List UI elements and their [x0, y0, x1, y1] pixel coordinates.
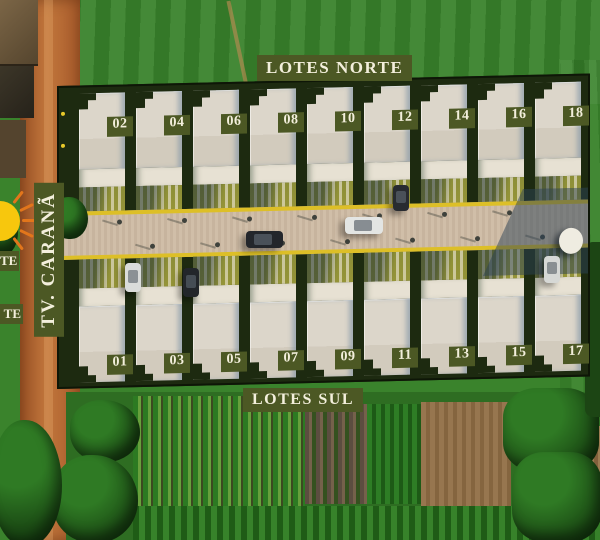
house-porch — [364, 281, 410, 300]
townhouse-lot: 13 — [421, 250, 467, 374]
car-icon-dark-street — [246, 231, 283, 248]
street-lamp-icon — [150, 244, 155, 249]
tree-canopy — [52, 455, 138, 540]
driveway — [193, 184, 239, 209]
street-lamp-icon — [345, 239, 350, 244]
townhouse-lot: 01 — [79, 258, 125, 382]
lot-number-badge: 05 — [221, 352, 247, 373]
label-lotes-sul: LOTES SUL — [243, 388, 363, 412]
house-roof: 01 — [79, 305, 125, 382]
house-porch — [535, 158, 581, 177]
sun-ray — [19, 229, 34, 238]
car-icon-dark-parked — [393, 185, 409, 211]
house-roof: 08 — [250, 88, 296, 165]
street-lamp-icon — [215, 242, 220, 247]
house-porch — [307, 282, 353, 301]
lot-number-badge: 01 — [107, 354, 133, 375]
house-roof: 11 — [364, 299, 410, 376]
townhouse-lot: 05 — [193, 256, 239, 380]
house-porch — [250, 164, 296, 183]
roof-notch — [421, 85, 430, 101]
roof-notch — [193, 364, 202, 380]
roof-notch — [250, 89, 259, 105]
car-icon-white-parked — [125, 263, 141, 292]
car-icon-dark-parked — [183, 268, 199, 297]
house-roof: 12 — [364, 86, 410, 163]
house-roof: 04 — [136, 91, 182, 168]
townhouse-lot: 03 — [136, 257, 182, 381]
driveway — [307, 181, 353, 206]
driveway — [79, 186, 125, 211]
lot-number-badge: 06 — [221, 114, 247, 135]
roof-notch — [364, 360, 373, 376]
street-lamp-icon — [247, 216, 252, 221]
townhouse-lot: 10 — [307, 87, 353, 206]
lot-number-badge: 09 — [335, 349, 361, 370]
house-porch — [193, 285, 239, 304]
house-porch — [136, 167, 182, 186]
house-porch — [193, 166, 239, 185]
driveway — [193, 256, 239, 286]
street-lamp-icon — [117, 219, 122, 224]
driveway — [79, 258, 125, 288]
driveway — [364, 252, 410, 282]
townhouse-lot: 16 — [478, 83, 524, 202]
street-lamp-icon — [410, 238, 415, 243]
townhouse-lot: 02 — [79, 92, 125, 211]
plowed-field-brown — [421, 402, 511, 506]
driveway — [421, 178, 467, 203]
sun-ray — [12, 190, 24, 204]
lot-number-badge: 10 — [335, 111, 361, 132]
townhouse-lot: 18 — [535, 82, 581, 201]
house-roof: 05 — [193, 303, 239, 380]
roof-notch — [193, 91, 202, 107]
roof-notch — [478, 84, 487, 100]
sun-ray — [19, 203, 34, 212]
house-roof: 06 — [193, 90, 239, 167]
house-porch — [79, 287, 125, 306]
house-roof: 10 — [307, 87, 353, 164]
lot-number-badge: 17 — [563, 343, 589, 364]
house-roof: 03 — [136, 304, 182, 381]
house-porch — [478, 159, 524, 178]
label-lotes-norte: LOTES NORTE — [257, 55, 412, 81]
house-porch — [364, 162, 410, 181]
label-edge-partial-bottom: TE — [0, 304, 23, 324]
sun-core — [0, 201, 20, 241]
crop-field-green — [367, 404, 421, 504]
townhouse-lot: 14 — [421, 84, 467, 203]
driveway — [478, 177, 524, 202]
label-edge-partial-top: TE — [0, 251, 19, 271]
lot-number-badge: 03 — [164, 353, 190, 374]
tree-canopy — [70, 400, 140, 462]
driveway — [136, 185, 182, 210]
lot-number-badge: 04 — [164, 115, 190, 136]
house-porch — [307, 163, 353, 182]
street-lamp-icon — [182, 218, 187, 223]
lot-number-badge: 13 — [449, 346, 475, 367]
lot-number-badge: 07 — [278, 350, 304, 371]
driveway — [307, 253, 353, 283]
house-roof: 09 — [307, 300, 353, 377]
roof-notch — [421, 358, 430, 374]
lot-number-badge: 16 — [506, 107, 532, 128]
neighbor-building-roof — [0, 66, 34, 118]
driveway — [136, 257, 182, 287]
house-porch — [250, 283, 296, 302]
house-roof: 13 — [421, 297, 467, 374]
roof-notch — [535, 356, 544, 372]
crop-field-green — [133, 396, 305, 506]
street-lamp-icon — [312, 215, 317, 220]
townhouse-lot: 04 — [136, 91, 182, 210]
site-plan-aerial-view: 02 04 06 08 10 12 — [0, 0, 600, 540]
lot-row-north: 02 04 06 08 10 12 — [59, 75, 588, 211]
lot-number-badge: 14 — [449, 108, 475, 129]
label-street-name: TV. CARANÃ — [34, 183, 64, 337]
street-lamp-icon — [442, 212, 447, 217]
lot-number-badge: 12 — [392, 109, 418, 130]
roof-notch — [250, 362, 259, 378]
driveway — [421, 250, 467, 280]
tree-canopy — [512, 452, 600, 540]
lot-number-badge: 02 — [107, 116, 133, 137]
townhouse-lot: 08 — [250, 88, 296, 207]
street-lamp-icon — [475, 236, 480, 241]
house-roof: 15 — [478, 296, 524, 373]
neighbor-building-roof — [0, 120, 26, 178]
townhouse-lot: 07 — [250, 254, 296, 378]
townhouse-lot: 09 — [307, 253, 353, 377]
driveway — [250, 182, 296, 207]
house-porch — [136, 286, 182, 305]
townhouse-lot: 06 — [193, 90, 239, 209]
roof-notch — [307, 88, 316, 104]
driveway — [250, 254, 296, 284]
house-porch — [79, 168, 125, 187]
house-roof: 07 — [250, 301, 296, 378]
house-porch — [421, 160, 467, 179]
roof-notch — [478, 357, 487, 373]
roof-notch — [364, 87, 373, 103]
house-roof: 18 — [535, 82, 581, 159]
neighbor-building-roof — [0, 0, 38, 66]
house-roof: 17 — [535, 295, 581, 372]
roof-notch — [307, 361, 316, 377]
house-porch — [421, 279, 467, 298]
lot-number-badge: 18 — [563, 105, 589, 126]
lot-number-badge: 08 — [278, 112, 304, 133]
townhouse-lot: 11 — [364, 252, 410, 376]
crop-field-dark — [305, 404, 367, 504]
lot-number-badge: 11 — [392, 347, 418, 368]
roof-notch — [136, 365, 145, 381]
house-roof: 16 — [478, 83, 524, 160]
house-roof: 14 — [421, 84, 467, 161]
development-site-boundary: 02 04 06 08 10 12 — [57, 73, 590, 389]
roof-notch — [79, 366, 88, 382]
house-porch — [478, 278, 524, 297]
sun-ray — [12, 237, 24, 251]
roof-notch — [136, 92, 145, 108]
lot-number-badge: 15 — [506, 345, 532, 366]
car-icon-white-parked — [544, 256, 560, 283]
roof-notch — [535, 83, 544, 99]
house-roof: 02 — [79, 92, 125, 169]
car-icon-silver-street — [345, 217, 383, 234]
roof-notch — [79, 93, 88, 109]
